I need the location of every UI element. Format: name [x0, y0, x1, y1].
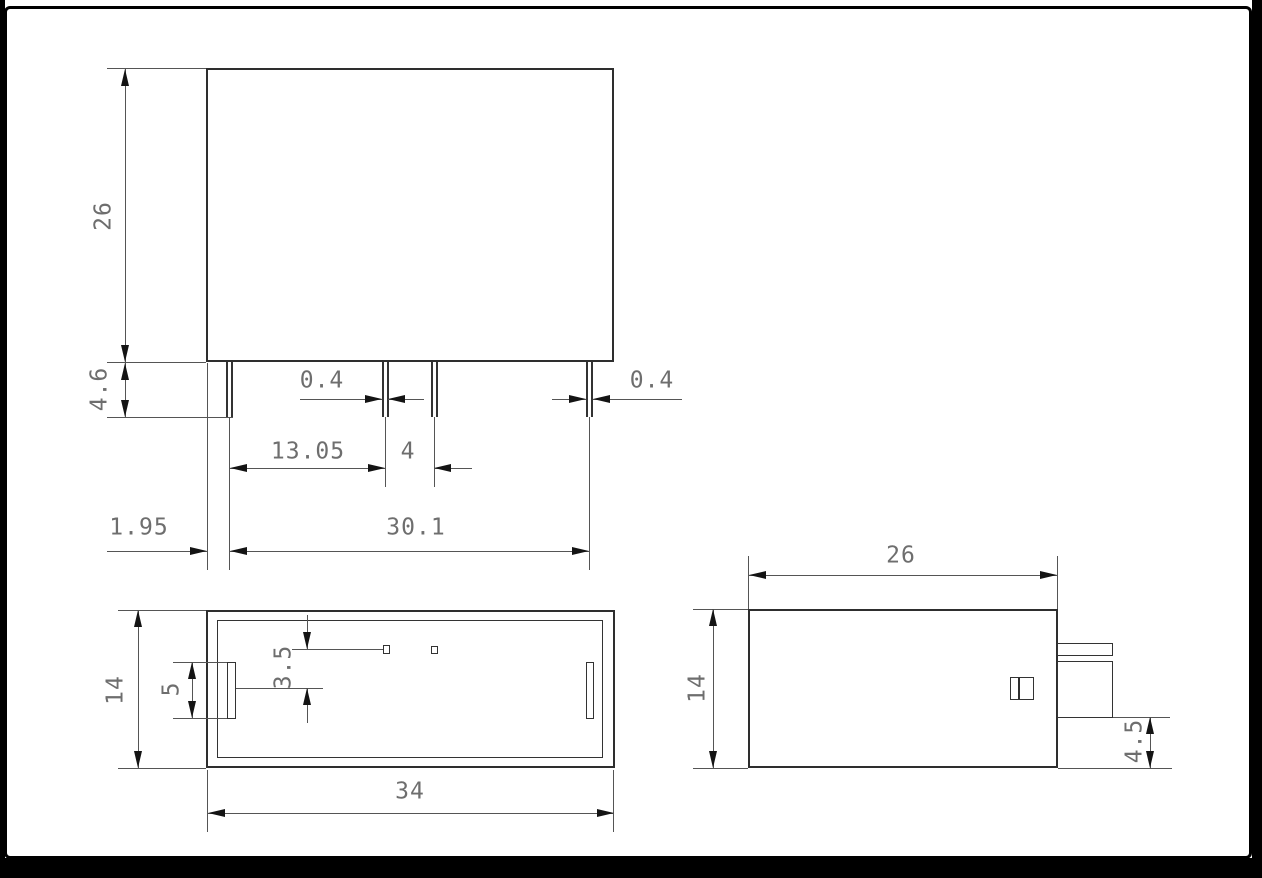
pin-hole-1 [383, 645, 390, 654]
dim-label-pitch-a: 13.05 [271, 441, 345, 464]
pin-3 [431, 362, 438, 417]
arrowhead [593, 395, 610, 403]
arrowhead [709, 609, 717, 626]
arrowhead [749, 571, 766, 579]
arrowhead [388, 395, 405, 403]
dimension-line [125, 69, 126, 362]
drawing-border [4, 6, 1252, 859]
arrowhead [134, 751, 142, 768]
latch-detail [1010, 677, 1034, 700]
dim-label-pin-span: 30.1 [386, 517, 445, 540]
extension-line [207, 770, 208, 832]
arrowhead [572, 547, 589, 555]
dim-label-pin-width-mid: 0.4 [300, 370, 345, 393]
dim-label-side-height: 14 [687, 673, 710, 703]
dim-label-height: 26 [93, 201, 116, 231]
arrowhead [365, 395, 382, 403]
slot-left [227, 662, 236, 719]
extension-line [173, 662, 227, 663]
page-edge-right [1252, 0, 1262, 878]
dim-label-edge-to-pin: 1.95 [109, 517, 168, 540]
extension-line [693, 768, 748, 769]
arrowhead [121, 69, 129, 86]
reference-line [292, 649, 383, 650]
arrowhead [121, 400, 129, 417]
extension-line [173, 718, 227, 719]
extension-line [385, 417, 386, 487]
extension-line [118, 768, 206, 769]
arrowhead [368, 464, 385, 472]
dim-label-length: 34 [395, 781, 425, 804]
pin-1 [226, 362, 233, 417]
dim-label-side-length: 26 [886, 545, 916, 568]
extension-line [589, 417, 590, 570]
arrowhead [1040, 571, 1057, 579]
pin-4 [586, 362, 593, 417]
arrowhead [230, 464, 247, 472]
page-edge-bottom [0, 858, 1262, 878]
dimension-line [713, 609, 714, 768]
dim-label-pin-width-right: 0.4 [630, 370, 675, 393]
slot-right [586, 662, 594, 719]
relay-body-outline [206, 68, 614, 362]
dimension-line [230, 468, 385, 469]
extension-line [1058, 768, 1172, 769]
extension-line [434, 417, 435, 487]
arrowhead [569, 395, 586, 403]
arrowhead [597, 809, 614, 817]
dim-label-step-height: 4.5 [1124, 719, 1147, 764]
extension-line [1057, 556, 1058, 609]
relay-outline-drawing: 26 4.6 0.4 0.4 13.05 4 1.95 30.1 [0, 0, 1262, 878]
arrowhead [434, 464, 451, 472]
extension-line [207, 363, 208, 570]
arrowhead [208, 809, 225, 817]
arrowhead [303, 632, 311, 649]
arrowhead [121, 345, 129, 362]
extension-line [693, 609, 748, 610]
arrowhead [134, 610, 142, 627]
extension-line [748, 556, 749, 609]
pin-hole-2 [431, 646, 438, 654]
pin-2 [382, 362, 389, 417]
dim-label-pitch-b: 4 [401, 441, 416, 464]
mounting-tab [1057, 643, 1113, 656]
arrowhead [303, 688, 311, 705]
dim-label-pin-length: 4.6 [89, 367, 112, 412]
arrowhead [709, 751, 717, 768]
dim-label-slot-length: 5 [161, 682, 184, 697]
dimension-line [207, 813, 614, 814]
dim-label-pin-row-offset: 3.5 [273, 645, 296, 690]
step-block [1057, 661, 1113, 718]
dimension-line [748, 575, 1058, 576]
extension-line [107, 417, 233, 418]
arrowhead [188, 701, 196, 718]
extension-line [118, 610, 206, 611]
latch-detail-divider [1018, 678, 1020, 699]
arrowhead [188, 662, 196, 679]
extension-line [613, 770, 614, 832]
dimension-line [230, 551, 589, 552]
arrowhead [121, 363, 129, 380]
page-edge-left [0, 0, 5, 878]
dim-label-width: 14 [105, 675, 128, 705]
dimension-line [138, 610, 139, 768]
arrowhead [190, 547, 207, 555]
arrowhead [230, 547, 247, 555]
